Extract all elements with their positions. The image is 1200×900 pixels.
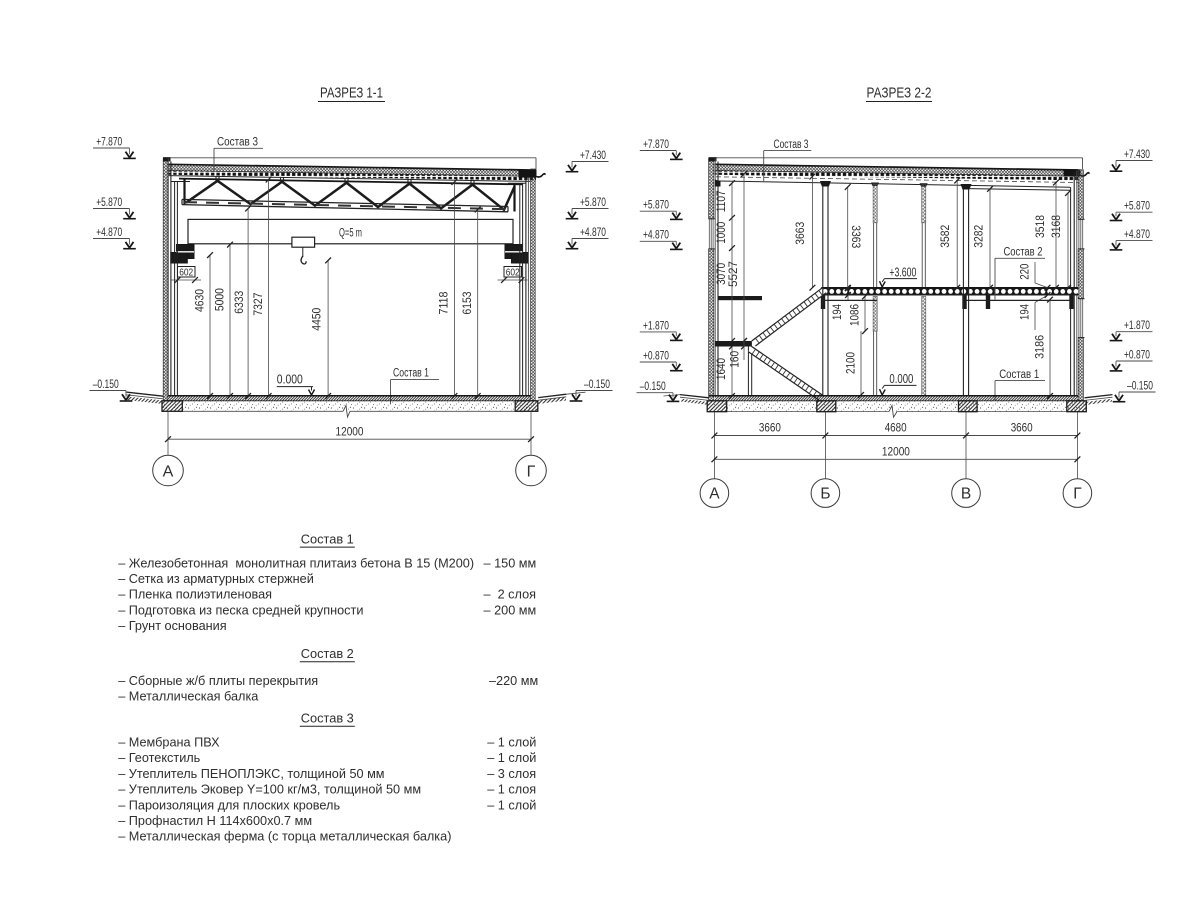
svg-text:Состав 2: Состав 2 <box>1004 247 1043 259</box>
svg-text:– 1 слоя: – 1 слоя <box>487 783 536 797</box>
svg-text:– 3 слоя: – 3 слоя <box>487 767 536 781</box>
svg-text:– 150 мм: – 150 мм <box>484 556 537 570</box>
svg-text:+5.870: +5.870 <box>580 197 606 209</box>
svg-text:12000: 12000 <box>882 446 910 458</box>
svg-text:4680: 4680 <box>885 423 907 435</box>
svg-text:+7.870: +7.870 <box>643 139 669 151</box>
svg-text:– 1 слой: – 1 слой <box>487 798 536 812</box>
svg-text:+5.870: +5.870 <box>643 200 669 212</box>
svg-text:Состав 3: Состав 3 <box>217 136 258 148</box>
svg-text:– Грунт основания: – Грунт основания <box>118 619 226 633</box>
svg-text:+5.870: +5.870 <box>96 197 122 209</box>
svg-text:602: 602 <box>179 266 193 278</box>
svg-text:5527: 5527 <box>726 261 740 287</box>
svg-text:+4.870: +4.870 <box>96 227 122 239</box>
svg-text:РАЗРЕЗ 2-2: РАЗРЕЗ 2-2 <box>867 86 932 102</box>
svg-text:1086: 1086 <box>847 304 861 326</box>
svg-text:–0.150: –0.150 <box>584 379 610 391</box>
svg-text:194: 194 <box>830 304 844 320</box>
svg-text:Состав 1: Состав 1 <box>301 532 354 547</box>
svg-text:–0.150: –0.150 <box>1127 380 1153 392</box>
svg-text:– Подготовка из песка средней: – Подготовка из песка средней крупности <box>118 603 363 617</box>
svg-text:0.000: 0.000 <box>889 372 913 386</box>
svg-text:3663: 3663 <box>793 222 807 245</box>
svg-text:160: 160 <box>728 351 742 368</box>
svg-text:– Утеплитель ПЕНОПЛЭКС, толщин: – Утеплитель ПЕНОПЛЭКС, толщиной 50 мм <box>118 767 384 781</box>
svg-text:– Профнастил Н 114х600х0.7 мм: – Профнастил Н 114х600х0.7 мм <box>118 814 312 828</box>
svg-text:+1.870: +1.870 <box>643 320 669 332</box>
svg-text:4450: 4450 <box>310 307 324 330</box>
svg-text:2100: 2100 <box>844 352 858 374</box>
svg-text:3582: 3582 <box>938 225 952 248</box>
svg-text:– Металлическая ферма (с торца: – Металлическая ферма (с торца металличе… <box>118 830 451 844</box>
svg-text:– Мембрана ПВХ: – Мембрана ПВХ <box>118 736 220 750</box>
svg-text:+3.600: +3.600 <box>889 265 916 279</box>
svg-text:– 2 слоя: – 2 слоя <box>484 588 537 602</box>
svg-text:– Сборные ж/б плиты перекрытия: – Сборные ж/б плиты перекрытия <box>118 674 318 688</box>
svg-text:3168: 3168 <box>1049 215 1063 238</box>
svg-text:– 1 слой: – 1 слой <box>487 736 536 750</box>
svg-text:Q=5 m: Q=5 m <box>339 228 362 240</box>
svg-text:– 200 мм: – 200 мм <box>484 603 537 617</box>
svg-text:7118: 7118 <box>437 291 451 314</box>
svg-text:1000: 1000 <box>714 222 728 244</box>
svg-text:3660: 3660 <box>1011 423 1033 435</box>
svg-text:1107: 1107 <box>714 190 728 212</box>
svg-text:Состав 2: Состав 2 <box>301 646 354 661</box>
svg-text:+7.870: +7.870 <box>96 136 122 148</box>
svg-text:– Металлическая балка: – Металлическая балка <box>118 690 259 704</box>
svg-text:– Утеплитель Эковер Y=100 кг/м: – Утеплитель Эковер Y=100 кг/м3, толщино… <box>118 783 421 797</box>
svg-text:А: А <box>709 486 720 503</box>
svg-text:194: 194 <box>1017 304 1031 320</box>
svg-text:+0.870: +0.870 <box>643 350 669 362</box>
svg-text:0.000: 0.000 <box>277 372 303 386</box>
svg-text:+7.430: +7.430 <box>1124 149 1150 161</box>
svg-text:–0.150: –0.150 <box>640 381 666 393</box>
svg-text:Б: Б <box>820 486 830 503</box>
svg-text:3282: 3282 <box>971 225 985 248</box>
svg-text:Г: Г <box>1073 486 1082 503</box>
svg-text:В: В <box>961 486 971 503</box>
svg-text:3363: 3363 <box>849 225 863 248</box>
svg-text:3186: 3186 <box>1032 335 1046 359</box>
svg-text:– Пароизоляция для плоских кро: – Пароизоляция для плоских кровель <box>118 798 340 812</box>
svg-text:– Железобетонная монолитная п: – Железобетонная монолитная плитаиз бето… <box>118 556 474 570</box>
svg-text:+7.430: +7.430 <box>580 150 606 162</box>
svg-text:+5.870: +5.870 <box>1124 201 1150 213</box>
svg-text:7327: 7327 <box>251 292 265 315</box>
svg-text:1640: 1640 <box>714 358 728 380</box>
svg-text:6153: 6153 <box>460 291 474 314</box>
svg-text:А: А <box>163 463 174 480</box>
svg-text:– Сетка из арматурных стержней: – Сетка из арматурных стержней <box>118 572 314 586</box>
svg-text:– Пленка полиэтиленовая: – Пленка полиэтиленовая <box>118 588 272 602</box>
svg-text:12000: 12000 <box>336 426 364 438</box>
svg-text:+0.870: +0.870 <box>1124 349 1150 361</box>
svg-text:Состав 1: Состав 1 <box>393 368 429 380</box>
svg-text:4630: 4630 <box>192 289 206 312</box>
svg-text:Состав 3: Состав 3 <box>301 711 354 726</box>
svg-text:3660: 3660 <box>759 423 781 435</box>
svg-text:Состав 1: Состав 1 <box>999 369 1039 381</box>
svg-text:Г: Г <box>527 463 536 480</box>
svg-text:5000: 5000 <box>213 288 227 311</box>
svg-text:Состав 3: Состав 3 <box>774 139 809 151</box>
svg-text:602: 602 <box>506 266 520 278</box>
svg-text:3518: 3518 <box>1033 215 1047 238</box>
svg-text:6333: 6333 <box>232 291 246 314</box>
svg-text:+4.870: +4.870 <box>580 227 606 239</box>
svg-text:РАЗРЕЗ 1-1: РАЗРЕЗ 1-1 <box>320 86 383 102</box>
svg-text:+1.870: +1.870 <box>1124 320 1150 332</box>
svg-text:220: 220 <box>1017 263 1031 279</box>
svg-text:–220 мм: –220 мм <box>489 674 538 688</box>
svg-text:+4.870: +4.870 <box>643 230 669 242</box>
svg-text:– 1 слой: – 1 слой <box>487 751 536 765</box>
svg-text:– Геотекстиль: – Геотекстиль <box>118 751 200 765</box>
svg-text:+4.870: +4.870 <box>1124 229 1150 241</box>
svg-text:–0.150: –0.150 <box>93 379 119 391</box>
